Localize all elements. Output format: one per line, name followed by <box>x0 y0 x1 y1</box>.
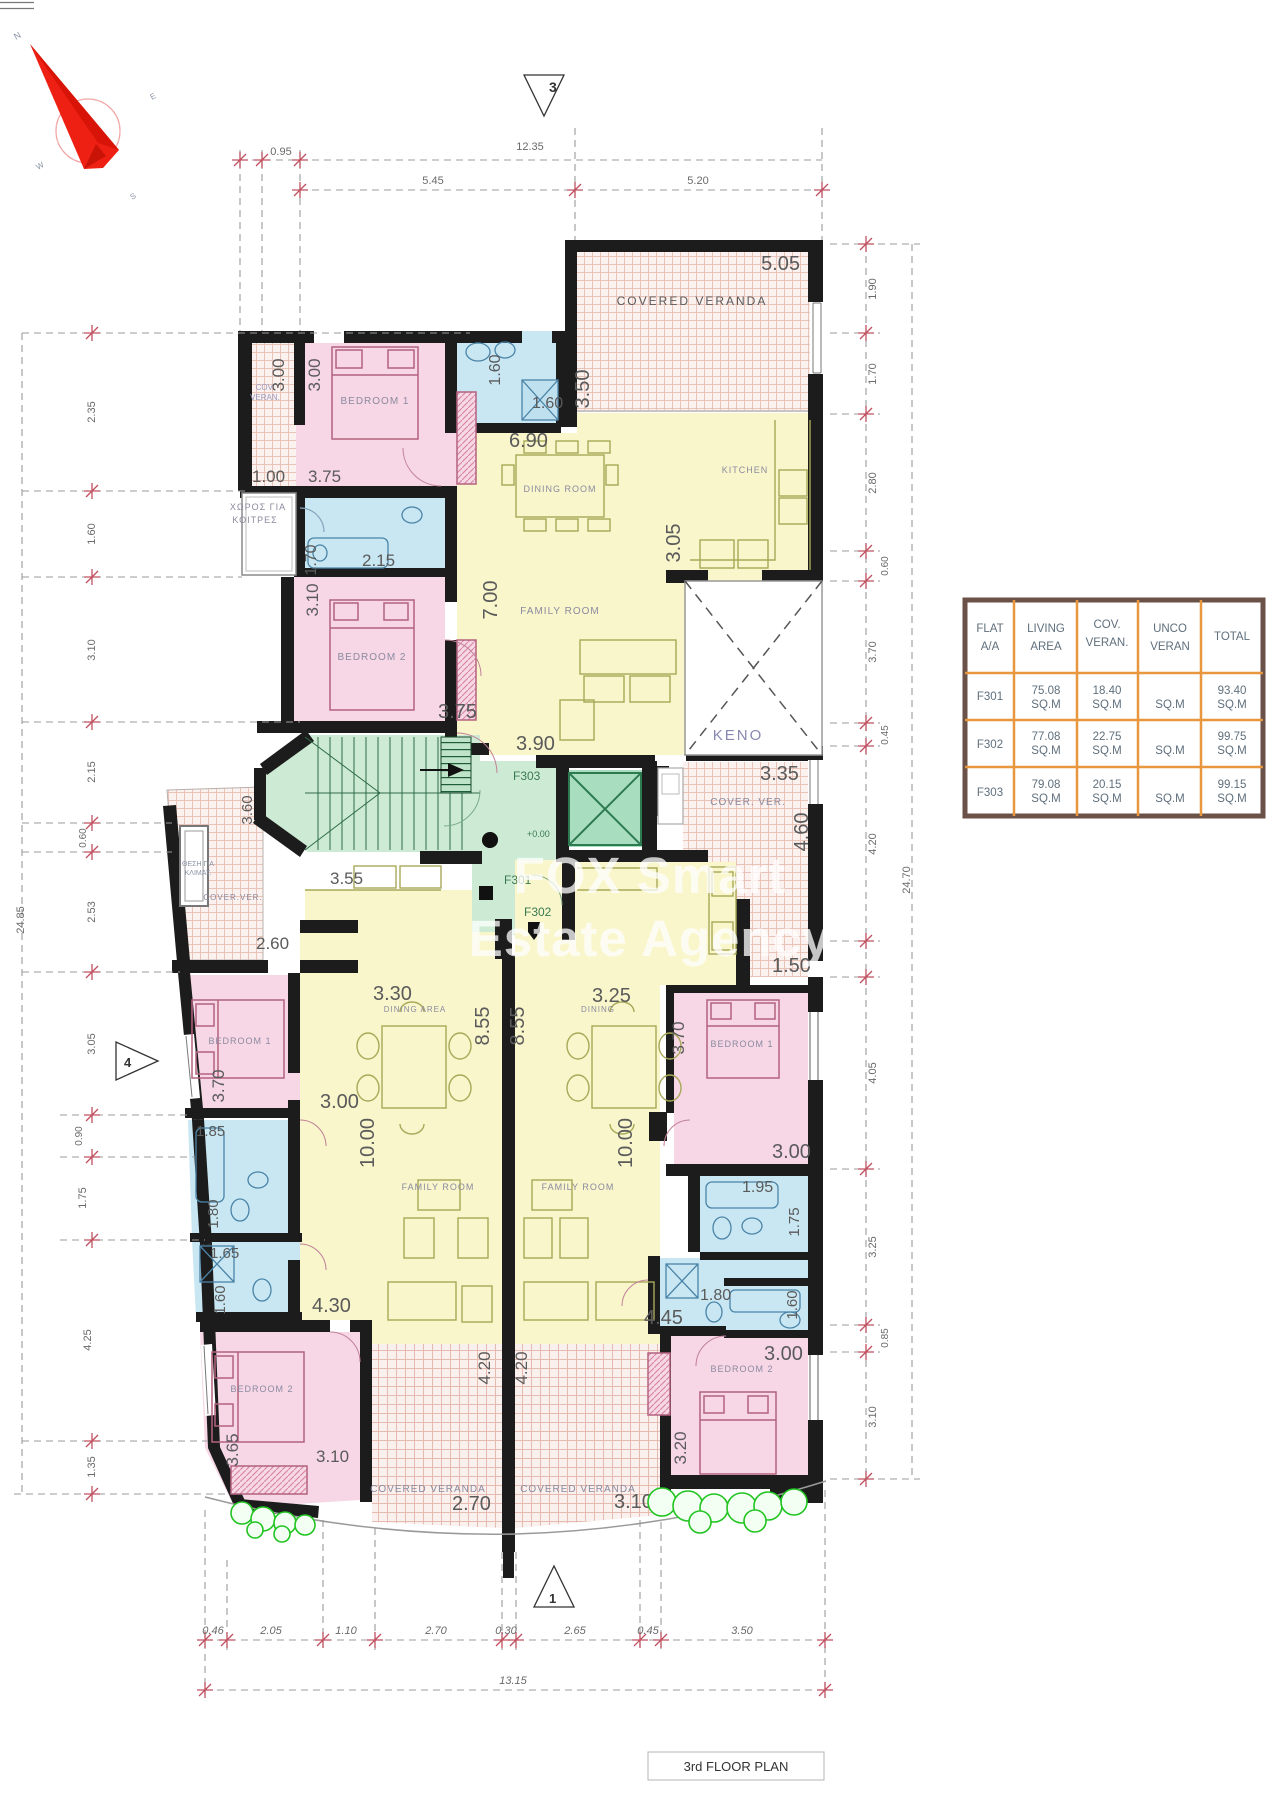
svg-text:3.65: 3.65 <box>223 1433 242 1466</box>
svg-text:99.15: 99.15 <box>1218 779 1247 791</box>
svg-text:4.20: 4.20 <box>475 1351 494 1384</box>
svg-text:3.50: 3.50 <box>731 1625 753 1637</box>
svg-text:2.60: 2.60 <box>256 934 289 953</box>
svg-text:+0.00: +0.00 <box>527 829 550 839</box>
svg-text:VERAN: VERAN <box>1150 641 1190 653</box>
svg-text:3.90: 3.90 <box>516 733 555 755</box>
svg-text:VERAN.: VERAN. <box>1086 637 1129 649</box>
svg-text:4.05: 4.05 <box>867 1062 879 1083</box>
svg-text:20.15: 20.15 <box>1093 779 1122 791</box>
svg-text:1.85: 1.85 <box>196 1123 225 1140</box>
svg-text:1.65: 1.65 <box>210 1245 239 1262</box>
svg-text:5.45: 5.45 <box>422 175 443 187</box>
svg-text:SQ.M: SQ.M <box>1092 793 1121 805</box>
svg-text:1.70: 1.70 <box>303 544 320 575</box>
svg-text:99.75: 99.75 <box>1218 731 1247 743</box>
svg-text:SQ.M: SQ.M <box>1217 699 1246 711</box>
svg-text:79.08: 79.08 <box>1032 779 1061 791</box>
svg-text:2.53: 2.53 <box>86 901 98 922</box>
svg-text:4.20: 4.20 <box>512 1351 531 1384</box>
svg-text:8.55: 8.55 <box>507 1007 529 1046</box>
svg-text:SQ.M: SQ.M <box>1217 793 1246 805</box>
svg-text:KENO: KENO <box>713 727 764 744</box>
svg-text:4.25: 4.25 <box>82 1329 94 1350</box>
svg-text:3.30: 3.30 <box>373 983 412 1005</box>
svg-text:1.60: 1.60 <box>487 354 504 385</box>
svg-text:3.50: 3.50 <box>572 370 594 409</box>
svg-text:0.45: 0.45 <box>880 725 891 745</box>
svg-text:SQ.M: SQ.M <box>1092 699 1121 711</box>
svg-text:3.00: 3.00 <box>764 1343 803 1365</box>
svg-text:F302: F302 <box>977 739 1003 751</box>
svg-text:BEDROOM 1: BEDROOM 1 <box>208 1036 271 1046</box>
svg-text:2.35: 2.35 <box>86 401 98 422</box>
svg-text:BEDROOM 1: BEDROOM 1 <box>340 396 409 407</box>
svg-text:3.10: 3.10 <box>86 639 98 660</box>
svg-text:BEDROOM 1: BEDROOM 1 <box>710 1039 773 1049</box>
svg-text:2.15: 2.15 <box>86 761 98 782</box>
svg-text:SQ.M: SQ.M <box>1092 745 1121 757</box>
svg-text:2.05: 2.05 <box>259 1625 282 1637</box>
svg-text:5.20: 5.20 <box>687 175 708 187</box>
svg-text:24.85: 24.85 <box>15 906 27 934</box>
svg-text:AREA: AREA <box>1030 641 1062 653</box>
svg-text:1.60: 1.60 <box>212 1285 229 1314</box>
svg-text:DINING ROOM: DINING ROOM <box>524 484 597 494</box>
svg-text:6.90: 6.90 <box>509 430 548 452</box>
svg-text:0.95: 0.95 <box>270 146 291 158</box>
svg-text:SQ.M: SQ.M <box>1155 745 1184 757</box>
svg-text:LIVING: LIVING <box>1027 623 1065 635</box>
svg-text:1.60: 1.60 <box>532 395 563 412</box>
svg-text:FOX Smart: FOX Smart <box>514 847 787 904</box>
svg-text:COVER. VER.: COVER. VER. <box>710 797 785 808</box>
svg-text:UNCO: UNCO <box>1153 623 1187 635</box>
svg-text:F303: F303 <box>977 787 1003 799</box>
svg-text:3.75: 3.75 <box>308 467 341 486</box>
svg-text:ΚΟΙΤΡΕΣ: ΚΟΙΤΡΕΣ <box>232 515 277 525</box>
svg-text:5.05: 5.05 <box>761 253 800 275</box>
svg-text:4.30: 4.30 <box>312 1295 351 1317</box>
svg-text:COV.: COV. <box>1093 619 1120 631</box>
svg-text:3: 3 <box>549 79 557 95</box>
svg-text:3.05: 3.05 <box>86 1033 98 1054</box>
svg-text:1.80: 1.80 <box>205 1199 222 1228</box>
svg-text:SQ.M: SQ.M <box>1031 793 1060 805</box>
svg-text:0.85: 0.85 <box>880 1328 891 1348</box>
svg-text:ΧΩΡΟΣ ΓΙΑ: ΧΩΡΟΣ ΓΙΑ <box>230 502 286 512</box>
svg-text:3.60: 3.60 <box>239 795 256 824</box>
svg-text:4.20: 4.20 <box>867 833 879 854</box>
svg-text:FAMILY ROOM: FAMILY ROOM <box>402 1182 475 1192</box>
svg-text:FLAT: FLAT <box>976 623 1003 635</box>
svg-text:77.08: 77.08 <box>1032 731 1061 743</box>
svg-text:1.10: 1.10 <box>335 1625 357 1637</box>
svg-text:0.60: 0.60 <box>880 556 891 576</box>
svg-text:3.70: 3.70 <box>867 641 879 662</box>
svg-text:A/A: A/A <box>981 641 1000 653</box>
svg-text:BEDROOM 2: BEDROOM 2 <box>710 1364 773 1374</box>
svg-text:SQ.M: SQ.M <box>1031 745 1060 757</box>
svg-text:2.70: 2.70 <box>424 1625 447 1637</box>
svg-text:1.60: 1.60 <box>86 523 98 544</box>
svg-text:75.08: 75.08 <box>1032 685 1061 697</box>
svg-text:1.90: 1.90 <box>867 278 879 299</box>
svg-text:BEDROOM 2: BEDROOM 2 <box>337 652 406 663</box>
svg-text:0.90: 0.90 <box>74 1126 85 1146</box>
svg-text:ΚΛΙΜΑΤ.: ΚΛΙΜΑΤ. <box>185 870 212 877</box>
svg-text:3.00: 3.00 <box>772 1141 811 1163</box>
svg-text:3.25: 3.25 <box>867 1236 879 1257</box>
svg-text:1.75: 1.75 <box>786 1207 803 1236</box>
svg-text:F303: F303 <box>513 769 541 783</box>
svg-text:3.00: 3.00 <box>320 1091 359 1113</box>
svg-text:4: 4 <box>124 1055 132 1070</box>
svg-text:3.75: 3.75 <box>438 701 477 723</box>
svg-text:13.15: 13.15 <box>499 1675 527 1687</box>
svg-text:3.00: 3.00 <box>269 358 288 391</box>
svg-text:2.15: 2.15 <box>362 551 395 570</box>
svg-text:3rd FLOOR PLAN: 3rd FLOOR PLAN <box>684 1759 789 1774</box>
svg-text:3.25: 3.25 <box>592 985 631 1007</box>
svg-text:2.80: 2.80 <box>867 472 879 493</box>
svg-text:0.45: 0.45 <box>637 1625 659 1637</box>
svg-text:1.70: 1.70 <box>867 363 879 384</box>
svg-text:1.80: 1.80 <box>700 1287 731 1304</box>
svg-text:DINING: DINING <box>581 1005 615 1014</box>
svg-text:KITCHEN: KITCHEN <box>722 465 769 475</box>
svg-text:3.10: 3.10 <box>867 1406 879 1427</box>
svg-text:3.00: 3.00 <box>305 358 324 391</box>
svg-text:VERAN.: VERAN. <box>250 393 280 402</box>
svg-text:18.40: 18.40 <box>1093 685 1122 697</box>
svg-text:COVERED VERANDA: COVERED VERANDA <box>370 1484 486 1495</box>
svg-text:7.00: 7.00 <box>480 581 502 620</box>
svg-text:COVERED VERANDA: COVERED VERANDA <box>617 294 768 308</box>
svg-text:DINING AREA: DINING AREA <box>384 1005 447 1014</box>
svg-text:TOTAL: TOTAL <box>1214 631 1251 643</box>
svg-text:3.20: 3.20 <box>671 1431 690 1464</box>
svg-text:BEDROOM 2: BEDROOM 2 <box>230 1384 293 1394</box>
svg-text:SQ.M: SQ.M <box>1031 699 1060 711</box>
svg-text:0.46: 0.46 <box>202 1625 224 1637</box>
svg-text:F301: F301 <box>977 691 1003 703</box>
svg-text:10.00: 10.00 <box>615 1118 637 1168</box>
svg-text:1.00: 1.00 <box>252 467 285 486</box>
svg-text:24.70: 24.70 <box>901 866 913 894</box>
svg-text:3.55: 3.55 <box>330 869 363 888</box>
svg-text:1.95: 1.95 <box>742 1179 773 1196</box>
svg-text:ΘΕΣΗ ΓΙΑ: ΘΕΣΗ ΓΙΑ <box>182 861 214 868</box>
svg-text:FAMILY ROOM: FAMILY ROOM <box>542 1182 615 1192</box>
svg-text:FAMILY ROOM: FAMILY ROOM <box>520 606 600 617</box>
svg-text:3.70: 3.70 <box>669 1021 688 1054</box>
svg-text:Estate Agency: Estate Agency <box>469 910 832 967</box>
svg-text:93.40: 93.40 <box>1218 685 1247 697</box>
svg-text:0.30: 0.30 <box>495 1625 517 1637</box>
svg-text:10.00: 10.00 <box>357 1118 379 1168</box>
svg-text:3.35: 3.35 <box>760 763 799 785</box>
svg-text:12.35: 12.35 <box>516 141 544 153</box>
svg-text:2.70: 2.70 <box>452 1493 491 1515</box>
svg-text:1.75: 1.75 <box>77 1187 89 1208</box>
svg-text:COVERED VERANDA: COVERED VERANDA <box>520 1484 636 1495</box>
svg-text:COVER.VER.: COVER.VER. <box>203 893 262 902</box>
svg-text:SQ.M: SQ.M <box>1217 745 1246 757</box>
svg-text:1.35: 1.35 <box>86 1456 98 1477</box>
svg-text:4.60: 4.60 <box>791 813 813 852</box>
svg-text:4.45: 4.45 <box>644 1307 683 1329</box>
svg-text:SQ.M: SQ.M <box>1155 699 1184 711</box>
svg-text:SQ.M: SQ.M <box>1155 793 1184 805</box>
svg-text:1: 1 <box>549 1591 556 1606</box>
svg-text:3.70: 3.70 <box>209 1069 228 1102</box>
svg-text:3.05: 3.05 <box>663 524 685 563</box>
svg-text:0.60: 0.60 <box>78 828 89 848</box>
svg-text:1.60: 1.60 <box>784 1290 801 1319</box>
svg-text:22.75: 22.75 <box>1093 731 1122 743</box>
svg-text:8.55: 8.55 <box>472 1007 494 1046</box>
svg-text:2.65: 2.65 <box>563 1625 586 1637</box>
svg-text:3.10: 3.10 <box>303 583 322 616</box>
svg-text:3.10: 3.10 <box>316 1447 349 1466</box>
